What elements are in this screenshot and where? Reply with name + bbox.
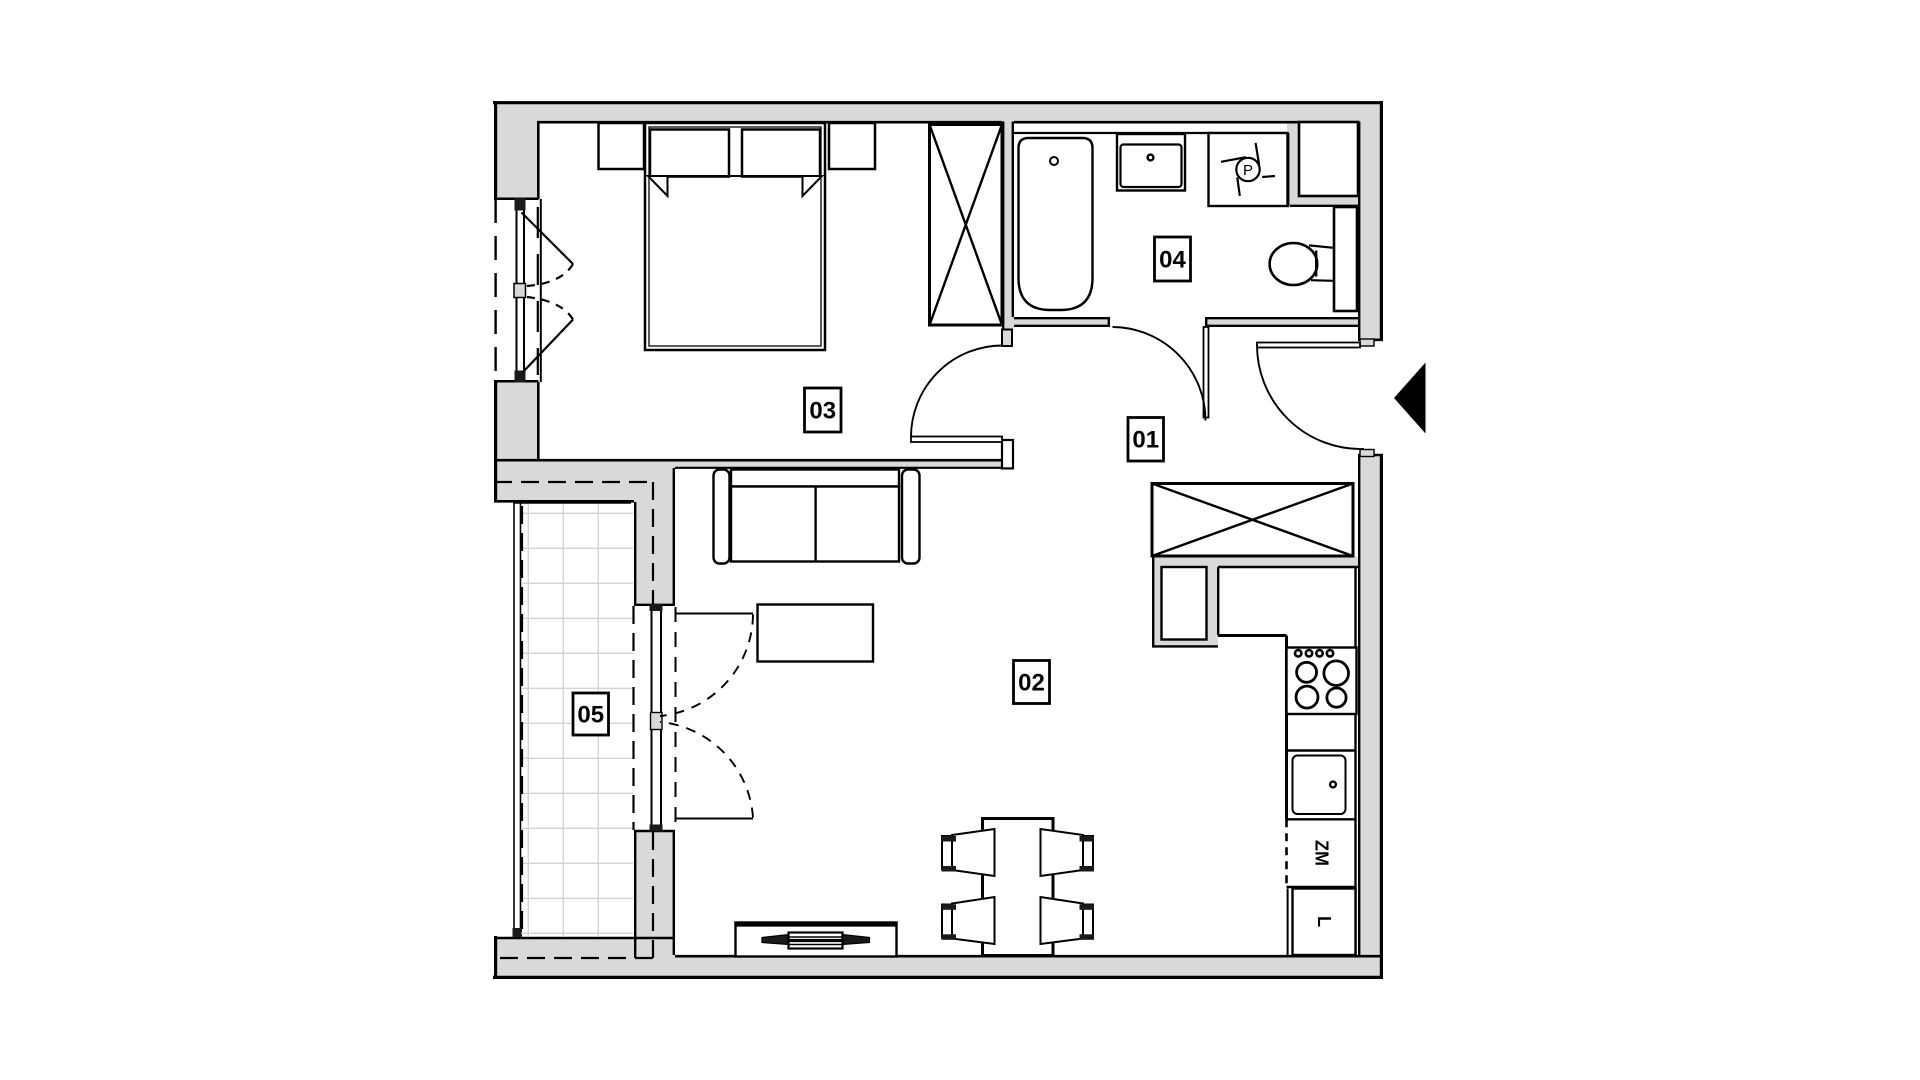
svg-text:04: 04 [1159,247,1186,274]
svg-text:02: 02 [1018,670,1045,697]
svg-text:L: L [1314,916,1334,927]
svg-text:P: P [1243,162,1253,179]
svg-text:05: 05 [577,702,604,729]
svg-text:ZM: ZM [1312,840,1332,866]
svg-text:01: 01 [1132,427,1159,454]
svg-text:03: 03 [809,398,836,425]
